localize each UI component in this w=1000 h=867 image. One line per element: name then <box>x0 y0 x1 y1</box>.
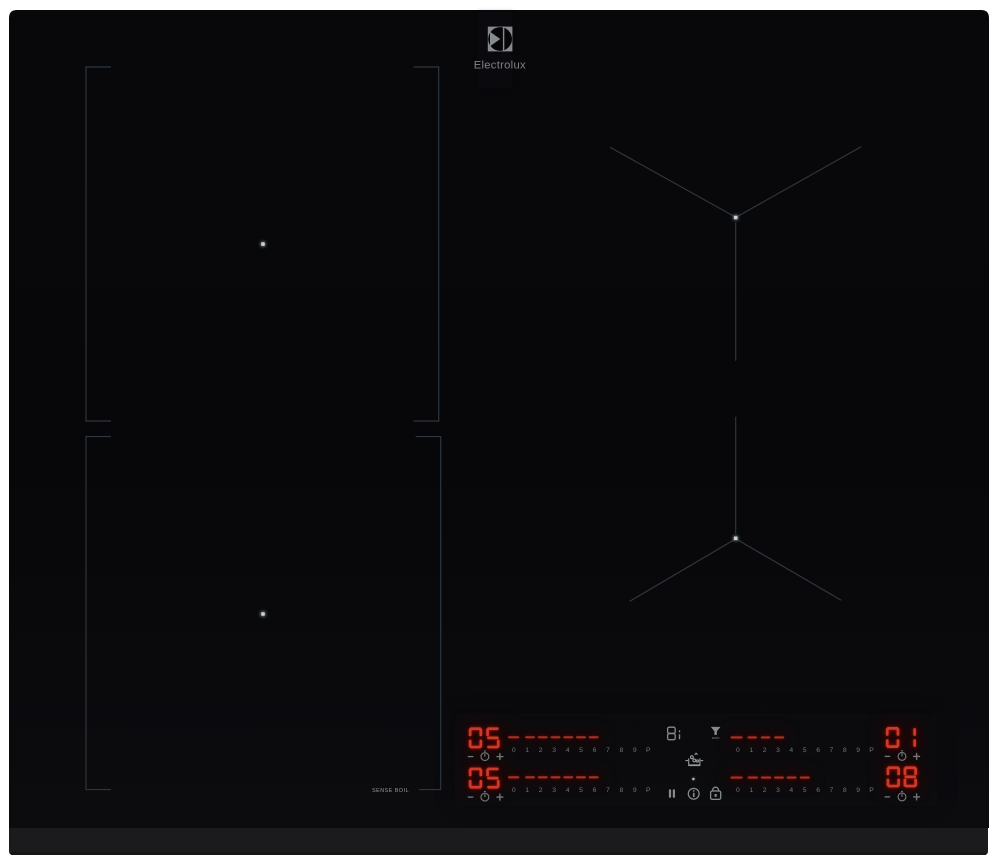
svg-text:auto: auto <box>712 736 720 740</box>
svg-text:SENSE BOIL: SENSE BOIL <box>372 788 409 794</box>
svg-text:Electrolux: Electrolux <box>474 59 526 71</box>
